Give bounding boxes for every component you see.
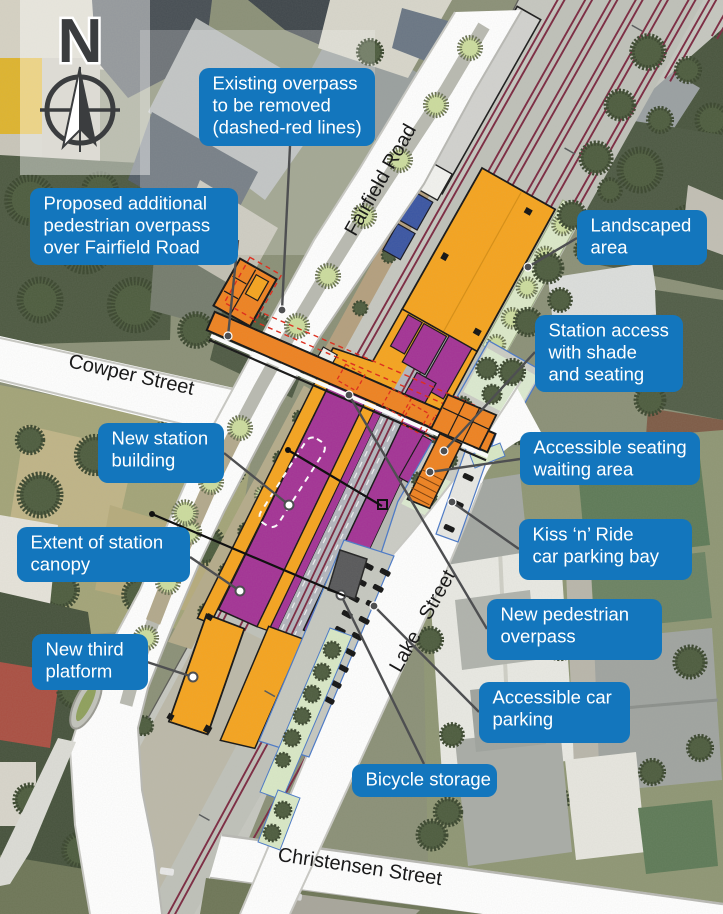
svg-text:N: N	[58, 7, 103, 76]
svg-text:New thirdplatform: New thirdplatform	[46, 638, 124, 681]
svg-text:Bicycle storage: Bicycle storage	[366, 768, 491, 789]
svg-text:Proposed additionalpedestrian: Proposed additionalpedestrian overpassov…	[44, 192, 211, 257]
